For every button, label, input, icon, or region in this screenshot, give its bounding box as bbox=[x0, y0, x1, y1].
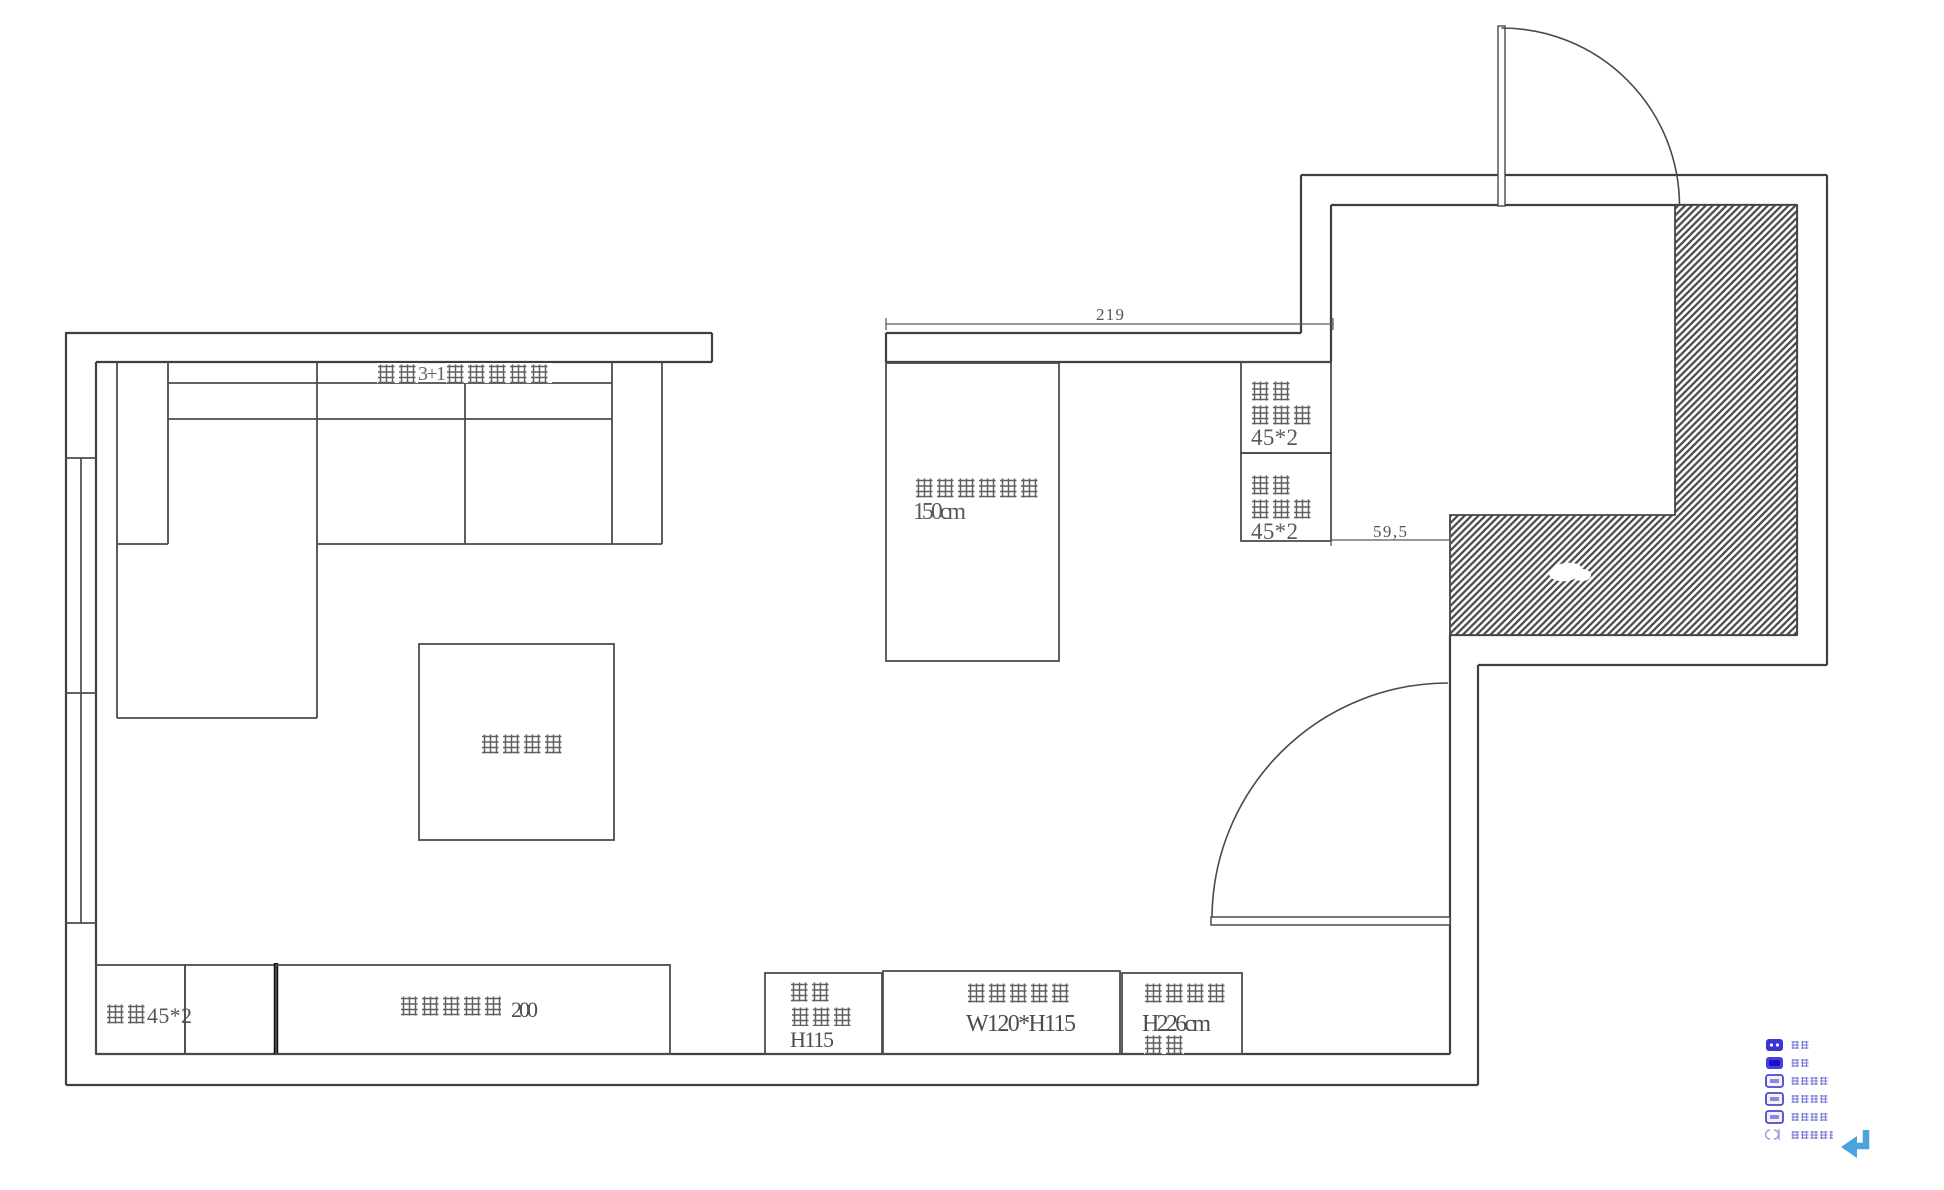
svg-text:H226cm: H226cm bbox=[1142, 1011, 1211, 1037]
svg-text:H115: H115 bbox=[790, 1027, 834, 1052]
svg-text:45*2: 45*2 bbox=[1251, 425, 1298, 450]
svg-text:59,5: 59,5 bbox=[1373, 522, 1407, 541]
svg-text:200: 200 bbox=[511, 997, 538, 1022]
svg-text:W120*H115: W120*H115 bbox=[966, 1011, 1076, 1037]
svg-text:150cm: 150cm bbox=[913, 499, 966, 525]
svg-text:45*2: 45*2 bbox=[1251, 519, 1298, 544]
svg-text:3+1: 3+1 bbox=[418, 363, 446, 385]
svg-text:219: 219 bbox=[1096, 305, 1124, 324]
